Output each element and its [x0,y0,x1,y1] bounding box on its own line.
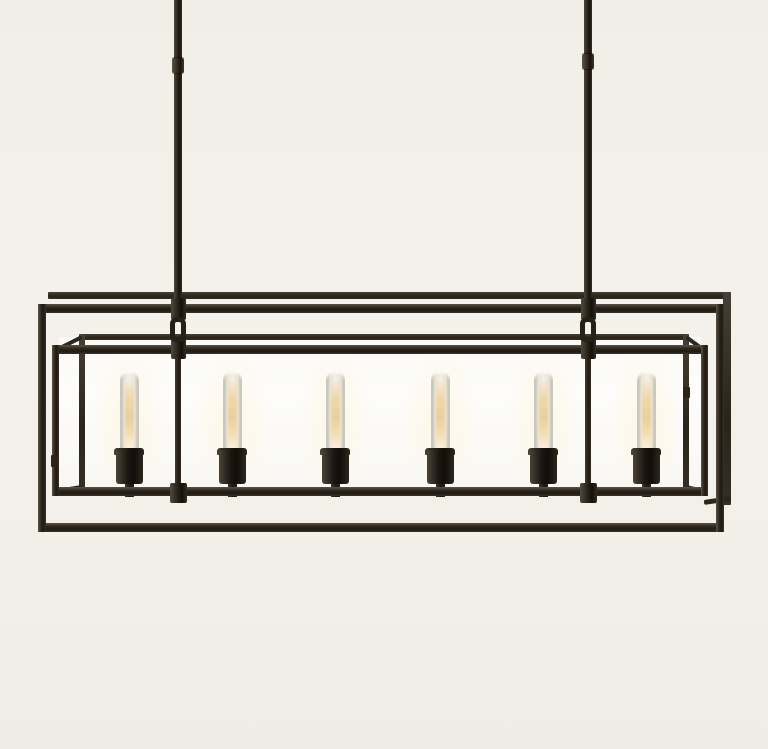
case-back-left-edge [79,334,85,488]
case-door-hinge [51,455,58,467]
eye-loop [580,317,596,342]
outer-frame-back-right-edge [723,292,731,505]
suspension-rod [174,0,182,308]
suspension-rod [584,0,592,308]
bulb-filament-glow [125,381,134,448]
outer-frame-bottom-bar [38,523,724,532]
bulb-filament-glow [642,381,651,448]
eye-loop [170,317,186,342]
case-front-right-edge [701,345,708,496]
bottom-rail-collar [170,483,187,503]
outer-frame-left-edge [38,304,46,532]
bulb-filament-glow [228,381,237,448]
bulb-socket [633,451,660,484]
bulb-filament-glow [539,381,548,448]
case-center-post [175,359,181,487]
case-front-bottom-rail [52,487,708,496]
bulb-socket [219,451,246,484]
bulb-socket [427,451,454,484]
case-front-left-edge [52,345,59,496]
outer-frame-top-bar [38,304,724,313]
case-front-top-rail [52,345,708,354]
bulb-filament-glow [436,381,445,448]
bottom-rail-collar [580,483,597,503]
outer-frame-back-top-rail [48,292,731,299]
bulb-filament-glow [331,381,340,448]
case-center-post [585,359,591,487]
case-door-hinge [683,387,690,398]
outer-frame-right-edge [716,304,724,532]
rod-coupling [172,58,184,73]
bulb-socket [116,451,143,484]
bulb-socket [322,451,349,484]
rod-coupling [582,54,594,69]
product-photo [0,0,768,749]
bulb-socket [530,451,557,484]
